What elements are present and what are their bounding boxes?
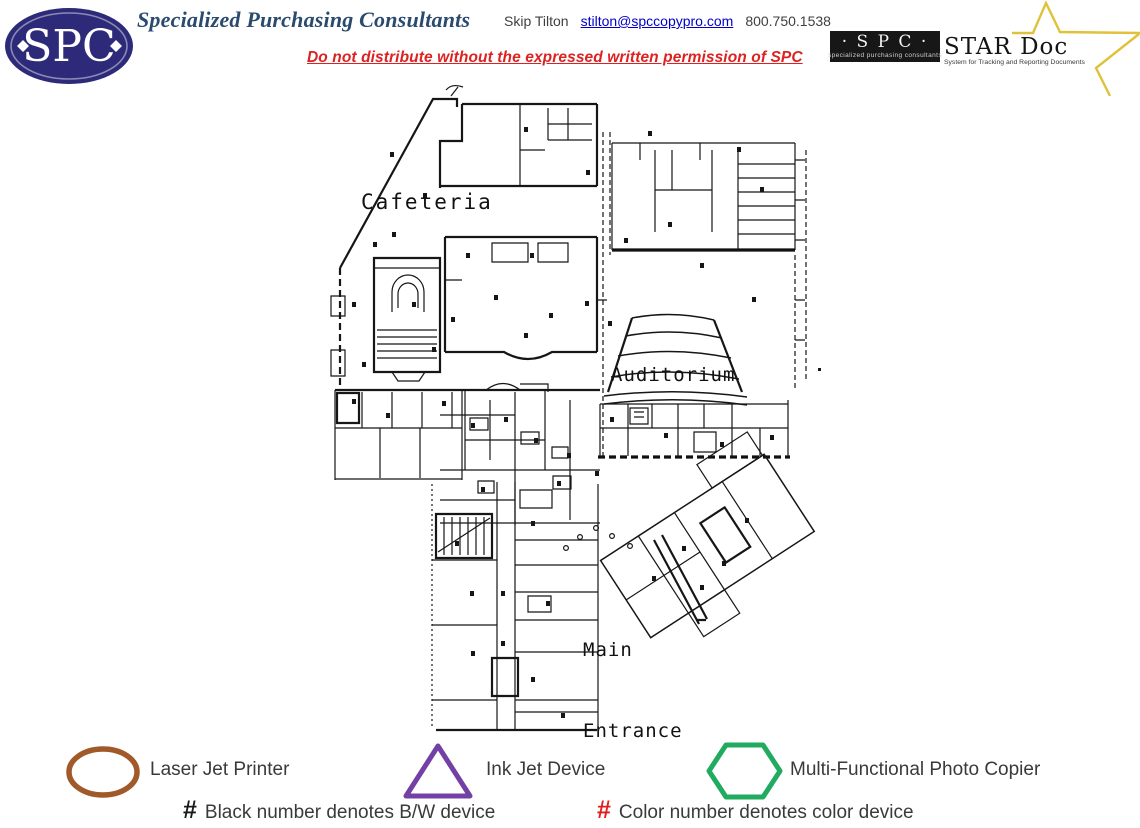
auditorium-label: Auditorium [611, 364, 735, 386]
laser-jet-printer-icon [64, 744, 142, 800]
black-hash-icon: # [183, 796, 197, 825]
legend-note-color: # Color number denotes color device [597, 796, 914, 825]
photo-copier-icon [705, 741, 785, 801]
page: SPC Specialized Purchasing Consultants S… [0, 0, 1140, 828]
floor-plan [0, 0, 1140, 828]
cafeteria-label: Cafeteria [361, 190, 493, 214]
ink-jet-device-icon [402, 742, 474, 800]
main-entrance-line1: Main [583, 637, 683, 664]
main-entrance-line2: Entrance [583, 718, 683, 745]
legend-note-bw-text: Black number denotes B/W device [205, 802, 495, 824]
legend-label-ink-jet: Ink Jet Device [486, 759, 605, 781]
red-hash-icon: # [597, 796, 611, 825]
legend-label-photo-copier: Multi-Functional Photo Copier [790, 759, 1040, 781]
legend-note-bw: # Black number denotes B/W device [183, 796, 495, 825]
legend-label-laser-jet: Laser Jet Printer [150, 759, 289, 781]
legend-note-color-text: Color number denotes color device [619, 802, 914, 824]
